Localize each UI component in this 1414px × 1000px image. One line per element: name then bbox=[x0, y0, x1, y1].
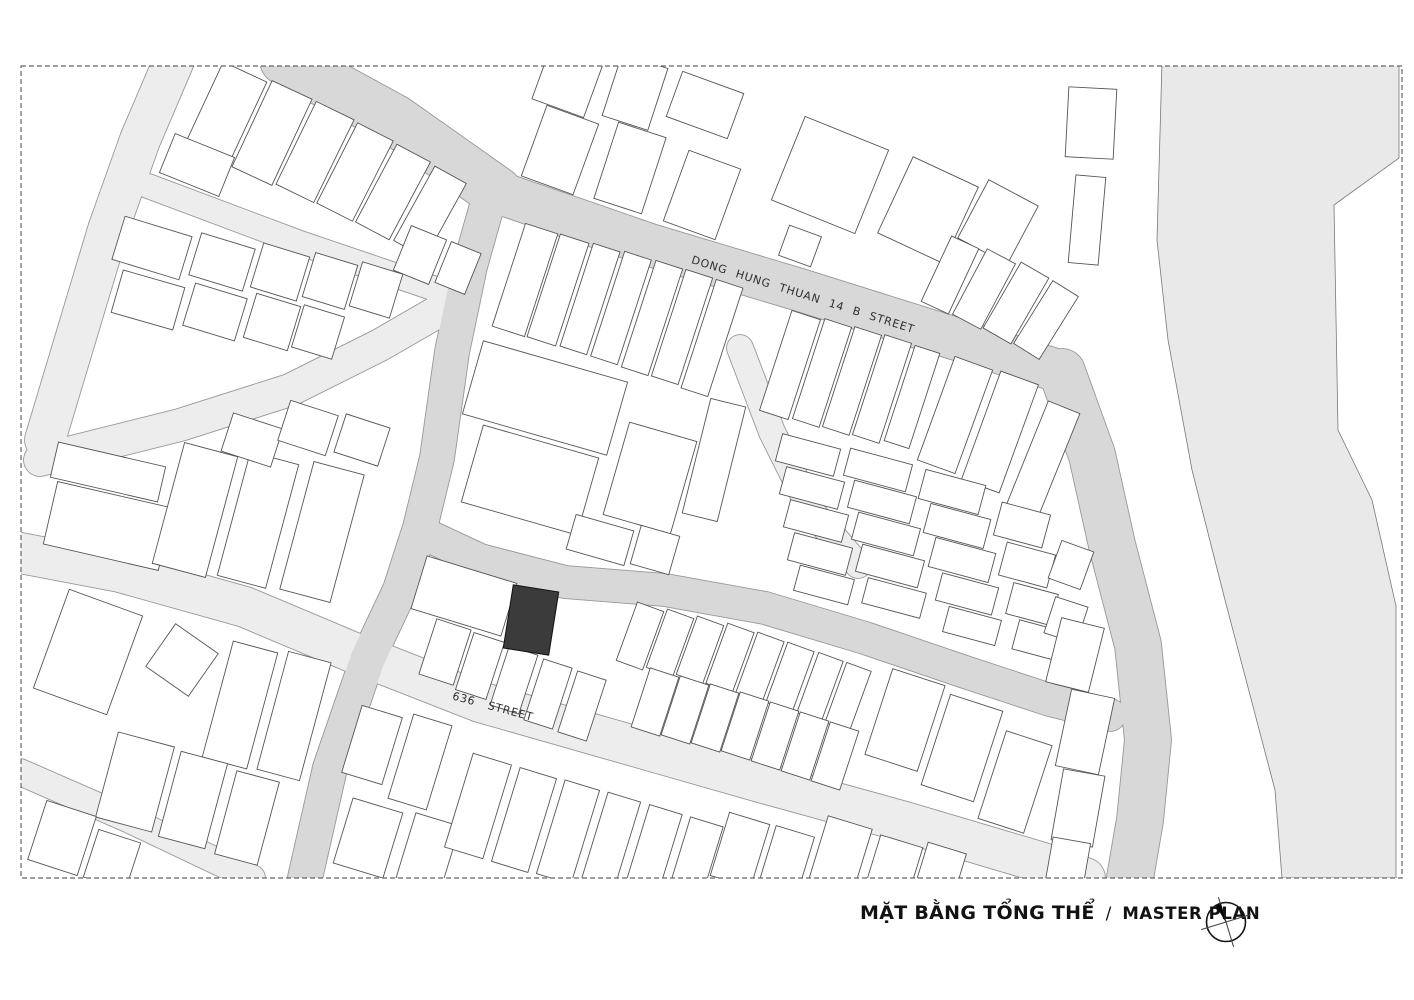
building-parcel bbox=[243, 293, 300, 350]
building-parcel bbox=[189, 233, 255, 291]
building-parcel bbox=[96, 732, 175, 832]
building-parcel bbox=[1051, 769, 1105, 847]
building-parcel bbox=[779, 467, 844, 510]
building-parcel bbox=[779, 225, 822, 267]
building-parcel bbox=[334, 414, 390, 466]
building-parcel bbox=[863, 835, 923, 905]
building-parcel bbox=[603, 422, 697, 534]
title-separator: / bbox=[1106, 904, 1112, 924]
building-parcel bbox=[521, 105, 598, 194]
building-parcel bbox=[943, 606, 1002, 645]
building-parcel bbox=[183, 283, 248, 341]
building-parcel bbox=[993, 502, 1050, 548]
north-compass-icon bbox=[1197, 893, 1255, 951]
project-site-building bbox=[503, 585, 558, 655]
master-plan-map: DONG HUNG THUAN 14 B STREET636 STREET bbox=[0, 0, 1414, 1000]
building-parcel bbox=[111, 270, 185, 330]
building-parcel bbox=[594, 122, 666, 214]
title-vietnamese: MẶT BẰNG TỔNG THỂ bbox=[860, 902, 1095, 924]
building-parcel bbox=[1045, 837, 1090, 887]
building-parcel bbox=[666, 71, 743, 138]
building-parcel bbox=[333, 798, 403, 878]
building-parcel bbox=[83, 829, 140, 890]
building-parcel bbox=[602, 54, 668, 131]
building-parcel bbox=[146, 624, 218, 696]
map-content: DONG HUNG THUAN 14 B STREET636 STREET bbox=[15, 42, 1399, 911]
building-parcel bbox=[663, 150, 740, 239]
compass-north-needle bbox=[1216, 904, 1227, 925]
building-parcel bbox=[33, 589, 142, 714]
building-parcel bbox=[808, 816, 872, 896]
building-parcel bbox=[771, 116, 888, 233]
building-parcel bbox=[566, 514, 634, 565]
building-parcel bbox=[630, 525, 679, 574]
building-parcel bbox=[396, 813, 460, 891]
building-parcel bbox=[532, 42, 604, 117]
river-area bbox=[1157, 62, 1399, 878]
building-parcel bbox=[923, 503, 991, 548]
building-parcel bbox=[998, 542, 1055, 588]
building-parcel bbox=[215, 771, 280, 865]
building-parcel bbox=[1068, 175, 1106, 265]
building-parcel bbox=[1048, 540, 1094, 589]
building-parcel bbox=[928, 537, 996, 582]
building-parcel bbox=[783, 500, 848, 543]
building-parcel bbox=[1065, 87, 1117, 159]
